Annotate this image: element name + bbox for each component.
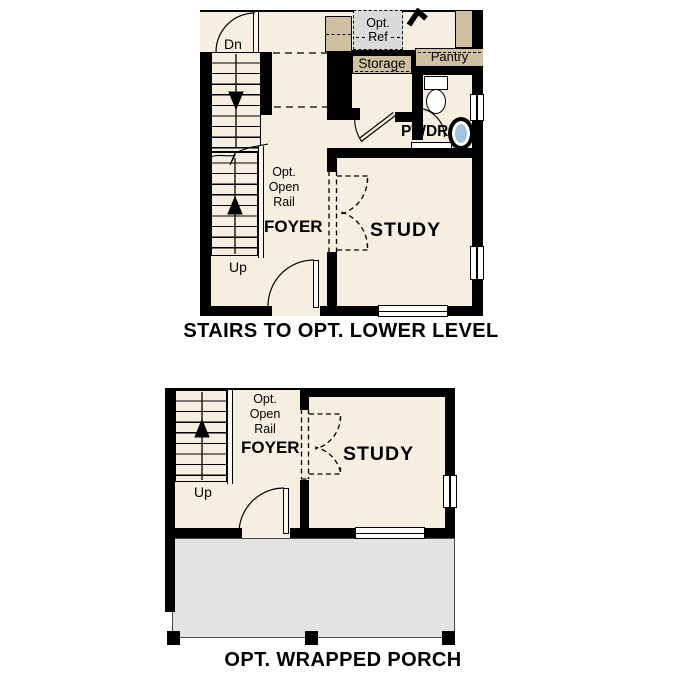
open-rail-line3: Rail bbox=[260, 195, 308, 210]
lower-stairs-up-run bbox=[175, 390, 227, 482]
stairs-down-run bbox=[211, 52, 261, 152]
lower-plan-caption: OPT. WRAPPED PORCH bbox=[163, 649, 523, 672]
toilet-icon bbox=[424, 76, 448, 90]
lower-front-door-leaf bbox=[283, 488, 289, 534]
foyer-label: FOYER bbox=[264, 217, 323, 237]
open-rail-label: Opt. Open Rail bbox=[260, 165, 308, 210]
closet-bottom-left-wall bbox=[327, 108, 360, 120]
study-left-wall-upper bbox=[327, 158, 337, 172]
lower-study-label: STUDY bbox=[343, 443, 414, 466]
porch-post-right bbox=[442, 631, 455, 645]
ref-dash-right bbox=[391, 37, 400, 38]
ref-dash-left bbox=[356, 37, 365, 38]
front-door-leaf bbox=[313, 260, 319, 308]
lower-study-left-wall-upper bbox=[300, 388, 309, 410]
porch-deck bbox=[172, 538, 455, 638]
lower-right-wall bbox=[445, 388, 455, 538]
storage-shelf: Storage bbox=[352, 55, 412, 74]
powder-side-window bbox=[470, 94, 484, 121]
sink-icon bbox=[448, 117, 474, 150]
pantry-shelf: Pantry bbox=[415, 48, 483, 67]
stair-up-label: Up bbox=[218, 260, 258, 275]
opt-ref-line1: Opt. bbox=[366, 16, 390, 30]
pantry-bottom-wall bbox=[415, 67, 483, 75]
study-left-wall-lower bbox=[327, 252, 337, 306]
lower-open-rail-line3: Rail bbox=[241, 422, 289, 437]
pantry-dash bbox=[418, 52, 481, 53]
lower-foyer-label: FOYER bbox=[241, 438, 300, 458]
study-bottom-window bbox=[378, 305, 448, 317]
lower-floor-plan: Up Opt. Open Rail FOYER STUDY bbox=[165, 385, 457, 647]
storage-label: Storage bbox=[358, 57, 405, 72]
upper-left-wall bbox=[200, 52, 211, 316]
toilet-bowl-icon bbox=[426, 89, 446, 114]
lower-open-rail-line1: Opt. bbox=[241, 392, 289, 407]
powder-counter bbox=[411, 142, 452, 149]
kitchen-closet-wall bbox=[327, 52, 352, 115]
opt-ref-box: Opt. Ref bbox=[353, 10, 403, 50]
powder-label: PWDR bbox=[401, 123, 448, 141]
stair-down-label: Dn bbox=[224, 37, 242, 52]
lower-study-top-wall bbox=[300, 388, 455, 397]
lower-study-side-window bbox=[443, 475, 457, 508]
upper-plan-caption: STAIRS TO OPT. LOWER LEVEL bbox=[161, 320, 521, 343]
upper-floor-plan: Opt. Ref Pantry Storage bbox=[200, 8, 483, 318]
lower-stair-up-label: Up bbox=[183, 485, 223, 500]
stairs-up-run bbox=[211, 152, 258, 256]
stairwell-right-wall bbox=[261, 52, 272, 115]
closet-bottom-right-wall bbox=[395, 112, 423, 122]
porch-post-middle bbox=[305, 631, 318, 645]
lower-open-rail-line2: Open bbox=[241, 407, 289, 422]
storage-dash bbox=[355, 71, 409, 72]
lower-open-rail bbox=[227, 390, 233, 484]
counter-dash bbox=[326, 34, 351, 35]
study-side-window bbox=[470, 246, 484, 280]
lower-left-wall bbox=[165, 388, 175, 612]
lower-open-rail-label: Opt. Open Rail bbox=[241, 392, 289, 437]
upper-top-edge-wall bbox=[200, 10, 483, 12]
kitchen-counter bbox=[325, 16, 352, 52]
opt-ref-line2: Ref bbox=[368, 30, 387, 44]
study-label: STUDY bbox=[370, 219, 441, 242]
pantry-upper-cabinet bbox=[455, 10, 472, 48]
lower-study-bottom-window bbox=[355, 527, 425, 539]
open-rail-line2: Open bbox=[260, 180, 308, 195]
lower-study-left-wall-lower bbox=[300, 480, 309, 538]
upper-landing-door-leaf bbox=[253, 11, 259, 53]
open-rail-line1: Opt. bbox=[260, 165, 308, 180]
porch-post-left bbox=[167, 631, 180, 645]
opt-ref-line2-row: Ref bbox=[356, 30, 399, 44]
